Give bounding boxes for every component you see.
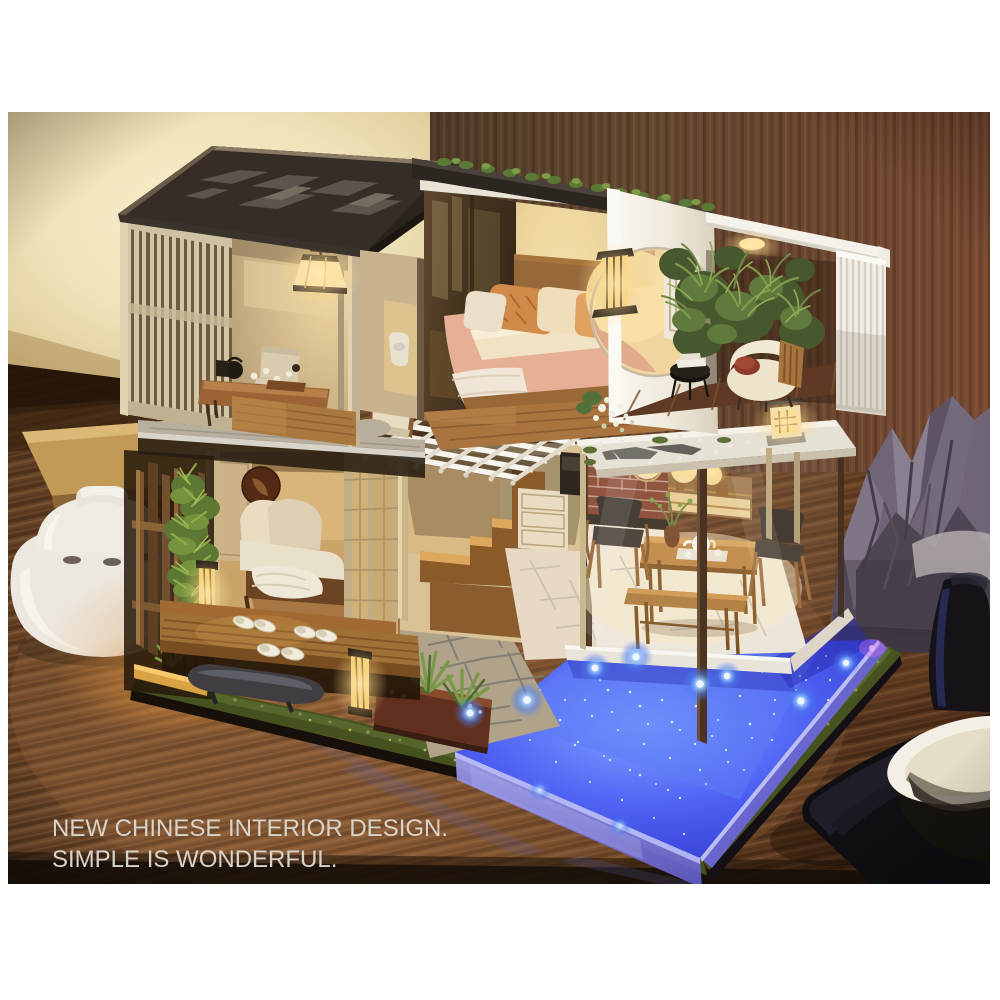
svg-text:SIMPLE IS WONDERFUL.: SIMPLE IS WONDERFUL. [52,846,337,873]
svg-text:NEW CHINESE INTERIOR DESIGN.: NEW CHINESE INTERIOR DESIGN. [52,815,448,842]
